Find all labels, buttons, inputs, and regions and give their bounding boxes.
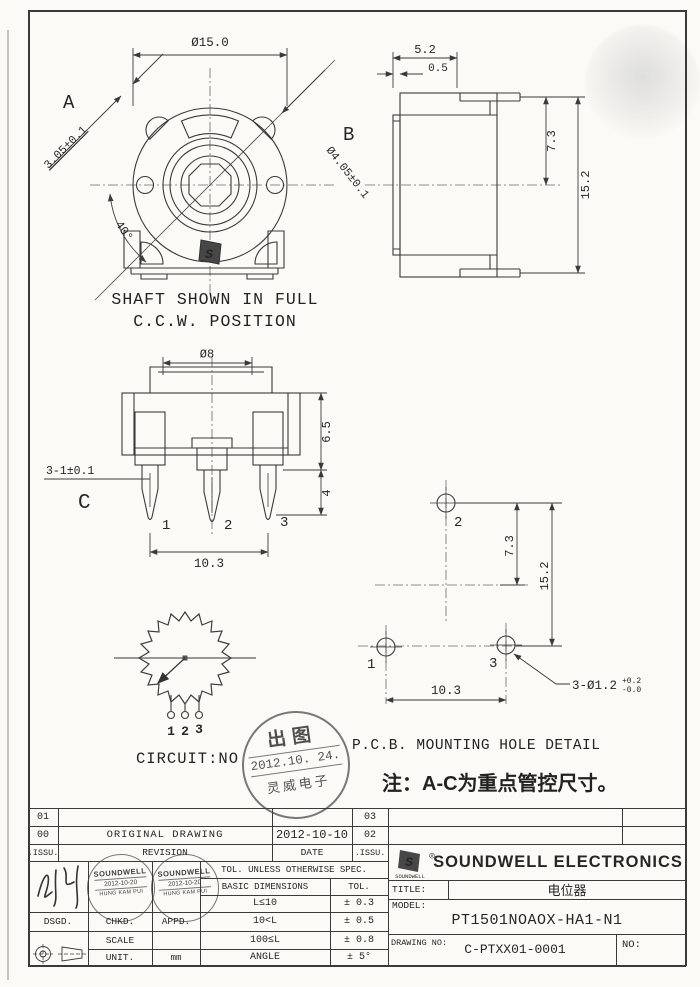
control-dims-note: 注：A-C为重点管控尺寸。 — [382, 767, 618, 796]
circuit-symbol: 1 2 3 — [110, 595, 280, 745]
unit-label: UNIT. — [88, 949, 152, 966]
dim-od-text: Ø15.0 — [191, 36, 229, 50]
circuit-pin3: 3 — [195, 722, 203, 737]
rev-row2-desc: ORIGINAL DRAWING — [58, 826, 272, 844]
pcb-dim-holes: 3-Ø1.2 — [572, 679, 617, 693]
svg-text:S: S — [205, 247, 213, 262]
chkd-label: CHKD. — [88, 912, 152, 931]
rev-head-issu: .ISSU. — [28, 844, 58, 861]
pcb-dim-height: 15.2 — [538, 562, 552, 591]
dim-shaft8-text: Ø8 — [200, 348, 214, 362]
pcb-tol-minus: -0.0 — [622, 686, 641, 695]
model-value: PT1501NOAOX-HA1-N1 — [388, 908, 686, 932]
tol-val-4: ± 5° — [330, 949, 388, 966]
front-caption-1: SHAFT SHOWN IN FULL — [110, 290, 320, 309]
tol-range-3: 100≤L — [200, 931, 330, 949]
title-label: TITLE: — [392, 880, 448, 899]
wiper-arrow — [158, 658, 185, 683]
dim-tip-text: 4 — [320, 489, 334, 496]
appd-label: APPD. — [152, 912, 200, 931]
dim-angle-text: 40° — [112, 218, 136, 244]
circuit-leads — [168, 695, 203, 719]
side-dims — [377, 52, 585, 273]
no-label: NO: — [622, 937, 662, 953]
pin2-label: 2 — [224, 518, 232, 534]
tol-val-2: ± 0.5 — [330, 912, 388, 931]
dim-height-text: 15.2 — [579, 171, 593, 200]
front-caption-2: C.C.W. POSITION — [110, 312, 320, 331]
dim-slot-text: 3.05±0.1 — [42, 124, 90, 172]
pin-view: Ø8 6.5 4 3-1±0.1 C 1 2 3 10.3 — [40, 345, 365, 590]
tol-header: TOL. UNLESS OTHERWISE SPEC. — [200, 861, 388, 878]
pin3-label: 3 — [280, 515, 288, 531]
unit-value: mm — [152, 949, 200, 966]
label-a: A — [63, 92, 75, 114]
dim-pin-width-text: 3-1±0.1 — [46, 465, 94, 478]
designer-signature — [30, 862, 86, 910]
scale-label: SCALE — [88, 931, 152, 949]
dim-plate-text: 0.5 — [428, 63, 448, 75]
side-view: 5.2 0.5 7.3 15.2 — [365, 40, 685, 290]
rev-row2-issu: 00 — [28, 826, 58, 844]
frame-top — [28, 10, 686, 12]
line — [388, 934, 686, 935]
tol-range-2: 10<L — [200, 912, 330, 931]
rev-row1-issu: 01 — [28, 808, 58, 826]
scan-edge-artifact — [7, 30, 9, 980]
line — [388, 808, 389, 966]
dim-upper-text: 7.3 — [545, 130, 559, 152]
tol-range-4: ANGLE — [200, 949, 330, 966]
company-logo-text: SOUNDWELL — [392, 872, 428, 880]
circuit-caption: CIRCUIT:NO — [136, 750, 239, 768]
dim-body-text: 6.5 — [320, 421, 334, 443]
pcb-centerlines — [358, 480, 532, 704]
circuit-pin2: 2 — [181, 724, 189, 739]
circuit-pin1: 1 — [167, 724, 175, 739]
rev-head-issu2: .ISSU. — [352, 844, 388, 861]
pin-body-outline — [122, 367, 300, 522]
label-b: B — [343, 124, 354, 146]
label-c: C — [78, 492, 91, 515]
dim-width-text: 5.2 — [414, 43, 436, 57]
tol-val-1: ± 0.3 — [330, 895, 388, 912]
svg-text:S: S — [405, 855, 413, 870]
basic-dim-header: BASIC DIMENSIONS — [200, 878, 330, 895]
pcb-dim-upper: 7.3 — [503, 535, 517, 557]
pin1-label: 1 — [162, 518, 170, 534]
rev-row1-desc — [58, 808, 272, 826]
company-name: SOUNDWELL ELECTRONICS — [430, 844, 686, 880]
tol-col-header: TOL. — [330, 878, 388, 895]
hole3-label: 3 — [489, 656, 497, 672]
tol-range-1: L≤10 — [200, 895, 330, 912]
rev-row2-date: 2012-10-10 — [272, 826, 352, 844]
pcb-caption: P.C.B. MOUNTING HOLE DETAIL — [352, 738, 600, 754]
pcb-tol-plus: +0.2 — [622, 677, 641, 686]
pcb-view: 7.3 15.2 2 1 3 10.3 3-Ø1.2 +0.2 -0.0 — [350, 470, 690, 715]
dsgd-label: DSGD. — [28, 912, 88, 931]
projection-symbol — [32, 944, 88, 965]
rev-head-date: DATE — [272, 844, 352, 861]
left-d-hole — [141, 112, 169, 140]
pcb-dim-pitch: 10.3 — [431, 684, 461, 698]
rev-row1-issu2: 03 — [352, 808, 388, 826]
drawing-no-value: C-PTXX01-0001 — [420, 938, 610, 960]
title-value: 电位器 — [448, 880, 686, 899]
line — [616, 934, 617, 966]
rev-row2-issu2: 02 — [352, 826, 388, 844]
base-plate — [124, 268, 284, 274]
line — [622, 808, 623, 844]
tol-val-3: ± 0.8 — [330, 931, 388, 949]
drawing-sheet: S Ø15.0 A 3.05±0.1 B Ø4.05±0.1 40° SHAFT… — [0, 0, 700, 987]
dim-shaft-arrow — [282, 70, 325, 113]
hole2-label: 2 — [454, 515, 462, 531]
hole1-label: 1 — [367, 657, 375, 673]
dim-pitch-text: 10.3 — [194, 557, 224, 571]
soundwell-logo-mark: S — [199, 240, 221, 264]
rev-row1-date — [272, 808, 352, 826]
right-d-hole — [253, 112, 281, 140]
base-feet — [141, 274, 273, 279]
rev-head-revision: REVISION — [58, 844, 272, 861]
pcb-dims — [386, 503, 570, 700]
